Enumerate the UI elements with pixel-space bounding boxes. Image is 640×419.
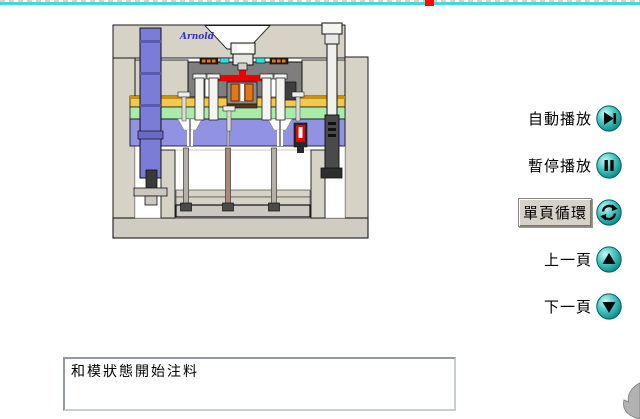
top-red-marker (425, 0, 434, 6)
next-page-button[interactable]: 下一頁 (472, 291, 622, 321)
pause-play-button[interactable]: 暫停播放 (472, 150, 622, 180)
next-page-label: 下一頁 (544, 296, 592, 317)
mouse-cursor (616, 381, 640, 419)
status-text-field[interactable]: 和模狀態開始注料 (63, 357, 456, 411)
cyan-insert-left (220, 58, 229, 63)
playback-controls: 自動播放 暫停播放 單頁循環 (472, 103, 622, 338)
status-text: 和模狀態開始注料 (71, 363, 199, 379)
heater-band-left (200, 58, 218, 64)
down-icon[interactable] (596, 293, 622, 320)
mold-diagram: Arnold (110, 18, 372, 240)
play-icon[interactable] (596, 105, 622, 132)
pause-icon[interactable] (596, 152, 622, 179)
base-plate (113, 218, 368, 238)
side-wall-right (345, 57, 368, 218)
auto-play-label: 自動播放 (528, 108, 592, 129)
ejector-plate-assembly (176, 190, 310, 217)
single-page-loop-label: 單頁循環 (518, 198, 592, 227)
hot-nozzle (227, 82, 257, 108)
cyan-insert-right (256, 58, 265, 63)
top-cyan-line (0, 2, 640, 5)
mold-diagram-svg: Arnold (110, 18, 372, 240)
previous-page-button[interactable]: 上一頁 (472, 244, 622, 274)
previous-page-label: 上一頁 (544, 249, 592, 270)
cooling-plate-green (130, 107, 345, 119)
thermometer (294, 123, 307, 153)
support-pillar-inner-right (311, 150, 325, 218)
heater-band-right (270, 58, 288, 64)
single-page-loop-button[interactable]: 單頁循環 (472, 197, 622, 227)
brand-label: Arnold (179, 32, 215, 42)
pause-play-label: 暫停播放 (528, 155, 592, 176)
animation-stage: Arnold 自動播放 暫停播放 (0, 0, 640, 419)
support-pillar-inner-left (161, 150, 175, 218)
up-icon[interactable] (596, 246, 622, 273)
loop-icon[interactable] (596, 199, 622, 226)
auto-play-button[interactable]: 自動播放 (472, 103, 622, 133)
